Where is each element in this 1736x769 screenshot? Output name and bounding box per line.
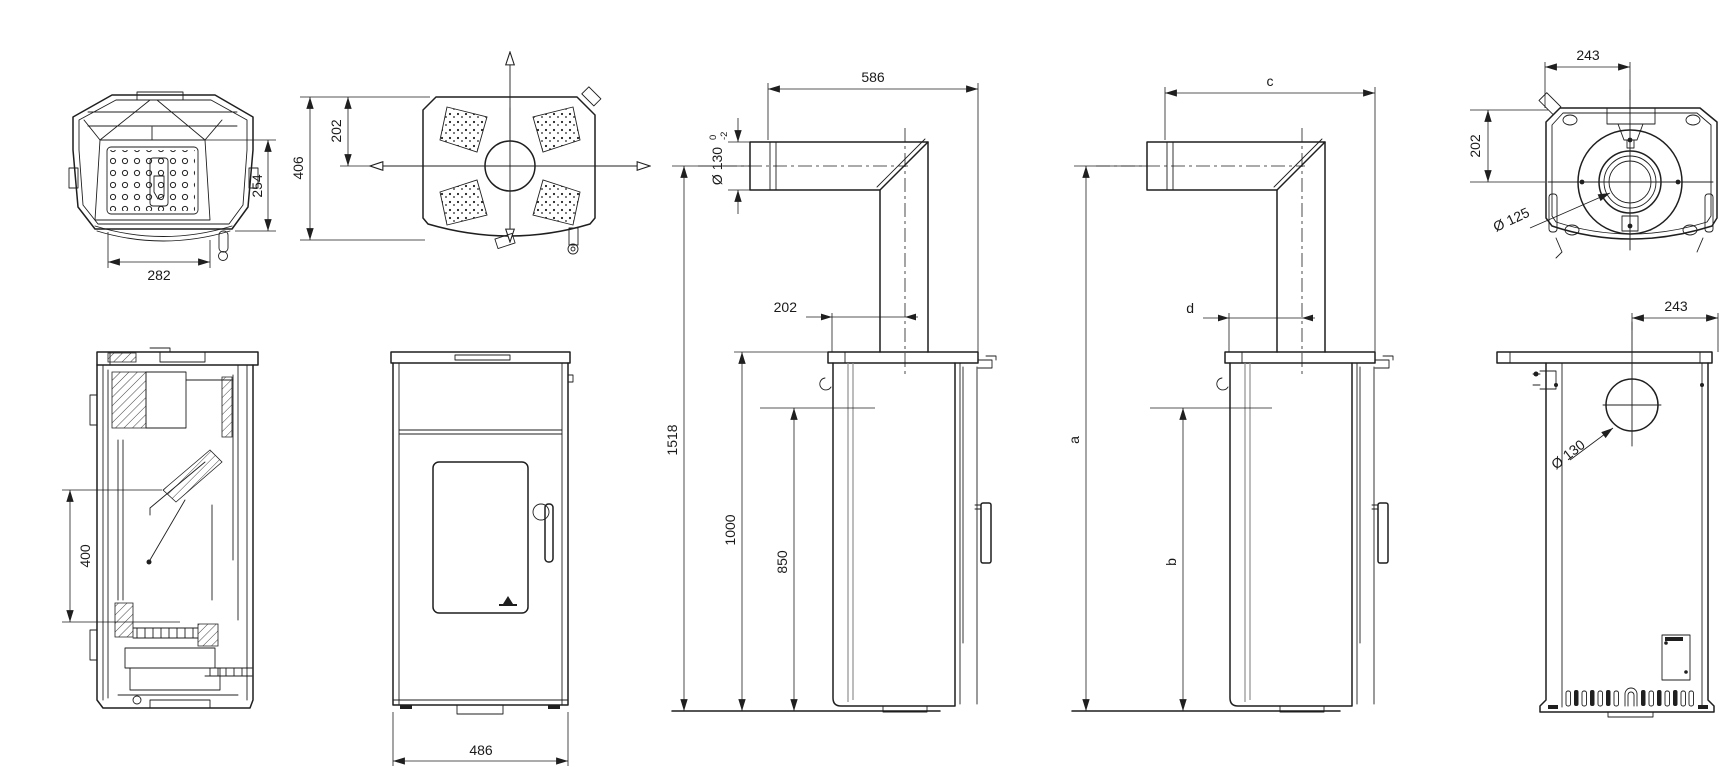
dim-text-586: 586 — [861, 69, 885, 85]
dim-850: 850 — [760, 408, 875, 711]
dim-text-pipe-tol-lower: -2 — [719, 132, 730, 140]
dim-text-125: Ø 125 — [1491, 204, 1533, 235]
view-side-dimensioned: 586 Ø 130 0 -2 202 1518 1000 850 — [664, 69, 996, 712]
dim-text-b: b — [1163, 558, 1179, 566]
view-bottom: 243 202 Ø 125 — [1467, 47, 1717, 258]
dim-text-406: 406 — [290, 156, 306, 180]
dim-406: 406 — [290, 97, 430, 240]
view-top: 406 202 — [290, 52, 650, 254]
dim-243-bottom: 243 — [1545, 47, 1630, 108]
dim-text-202-bottom: 202 — [1467, 134, 1483, 158]
dim-text-243-back: 243 — [1664, 298, 1688, 314]
view-front: 486 — [391, 352, 573, 766]
dim-text-202-side: 202 — [774, 299, 798, 315]
dim-243-back: 243 — [1632, 298, 1718, 352]
dim-586: 586 — [768, 69, 978, 352]
dim-flue-dia-130: Ø 130 — [1548, 428, 1613, 472]
view-firebox-top: 254 282 — [69, 92, 276, 283]
dim-254: 254 — [200, 140, 276, 231]
dim-text-254: 254 — [249, 174, 265, 198]
dim-b: b — [1150, 408, 1272, 711]
dim-text-1518: 1518 — [664, 424, 680, 455]
dim-202-top: 202 — [328, 97, 372, 166]
dim-a: a — [1066, 166, 1147, 711]
dim-282: 282 — [108, 232, 210, 283]
dim-1518: 1518 — [664, 166, 750, 711]
view-side-lettered: c d a b — [1066, 73, 1393, 712]
dim-c: c — [1165, 73, 1375, 352]
dim-text-202-top: 202 — [328, 119, 344, 143]
dim-486: 486 — [393, 712, 568, 766]
dim-flue-dia-125: Ø 125 — [1491, 193, 1610, 235]
dim-text-850: 850 — [774, 550, 790, 574]
dim-text-d: d — [1186, 300, 1194, 316]
view-section: 400 — [62, 348, 258, 708]
dim-202-side: 202 — [774, 299, 918, 352]
drawing-sheet: 254 282 406 202 — [0, 0, 1736, 769]
vent-slots — [1566, 688, 1694, 706]
dim-text-400: 400 — [77, 544, 93, 568]
dim-text-282: 282 — [147, 267, 171, 283]
dim-1000: 1000 — [722, 352, 830, 711]
dim-text-486: 486 — [469, 742, 493, 758]
dim-text-a: a — [1066, 436, 1082, 444]
dim-text-130: Ø 130 — [1548, 436, 1588, 472]
dim-text-243-bottom: 243 — [1576, 47, 1600, 63]
technical-drawing: 254 282 406 202 — [0, 0, 1736, 769]
dim-d: d — [1186, 300, 1315, 352]
dim-400: 400 — [62, 490, 180, 622]
dim-text-pipe-tol-upper: 0 — [708, 135, 719, 140]
view-back: 243 Ø 130 — [1497, 298, 1718, 717]
dim-text-1000: 1000 — [722, 514, 738, 545]
dim-text-c: c — [1267, 73, 1274, 89]
dim-202-bottom: 202 — [1467, 110, 1548, 182]
